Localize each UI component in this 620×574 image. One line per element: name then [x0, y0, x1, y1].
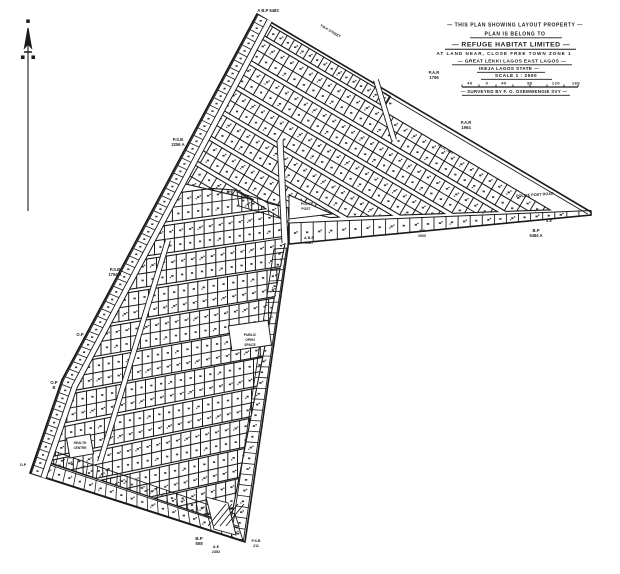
- svg-text:1796: 1796: [429, 75, 439, 80]
- svg-text:40: 40: [501, 81, 507, 86]
- svg-text:O.P: O.P: [76, 332, 83, 337]
- svg-text:— THIS PLAN SHOWING LAYO: — THIS PLAN SHOWING LAYOUT PROPERTY —: [447, 23, 583, 29]
- svg-text:120: 120: [552, 81, 560, 86]
- svg-text:OPEN: OPEN: [245, 338, 255, 342]
- svg-text:0: 0: [486, 81, 489, 86]
- svg-text:CENTRE: CENTRE: [73, 446, 86, 450]
- svg-text:IKEJA LAGOS STATE —: IKEJA LAGOS STATE —: [479, 66, 539, 71]
- svg-text:PLAN IS BELONG TO: PLAN IS BELONG TO: [485, 32, 546, 38]
- svg-text:— REFUGE HABITAT LIMITED —: — REFUGE HABITAT LIMITED —: [452, 42, 570, 49]
- svg-text:2352: 2352: [212, 550, 220, 554]
- svg-text:508: 508: [195, 541, 203, 546]
- svg-text:POLICE: POLICE: [301, 202, 314, 206]
- svg-text:P.S.B: P.S.B: [252, 539, 261, 543]
- svg-text:1794 A: 1794 A: [108, 272, 121, 277]
- svg-text:POST: POST: [301, 207, 311, 211]
- svg-text:5487: 5487: [305, 241, 313, 245]
- svg-text:— SURVEYED BY F. O. OSEMWEN: — SURVEYED BY F. O. OSEMWENGIE SVY —: [461, 89, 568, 94]
- svg-text:AT LAND NEAR, CLOSE FREE: AT LAND NEAR, CLOSE FREE TOWN ZONE 1: [436, 51, 571, 56]
- svg-text:5484 A: 5484 A: [529, 233, 542, 238]
- svg-text:2000: 2000: [418, 234, 426, 238]
- svg-text:A.E: A.E: [546, 219, 553, 223]
- svg-text:A B.P: A B.P: [304, 236, 314, 240]
- svg-text:A B.P 5483: A B.P 5483: [257, 8, 279, 13]
- svg-text:1964: 1964: [461, 125, 471, 130]
- svg-text:2256 A: 2256 A: [171, 142, 184, 147]
- svg-text:O.P: O.P: [20, 463, 27, 467]
- svg-text:A.E: A.E: [419, 229, 426, 233]
- svg-text:— GREAT LEKKI LAGOS EAST L: — GREAT LEKKI LAGOS EAST LAGOS —: [458, 59, 566, 65]
- svg-text:HEALTH: HEALTH: [74, 441, 87, 445]
- svg-text:SCALE 1 : 2500: SCALE 1 : 2500: [495, 73, 537, 79]
- svg-text:PUBLIC: PUBLIC: [244, 333, 257, 337]
- svg-text:40: 40: [467, 81, 473, 86]
- svg-text:B: B: [52, 385, 55, 390]
- svg-text:A.E: A.E: [213, 545, 220, 549]
- svg-text:160: 160: [572, 81, 580, 86]
- svg-text:211: 211: [253, 544, 259, 548]
- svg-text:SPACE: SPACE: [244, 343, 256, 347]
